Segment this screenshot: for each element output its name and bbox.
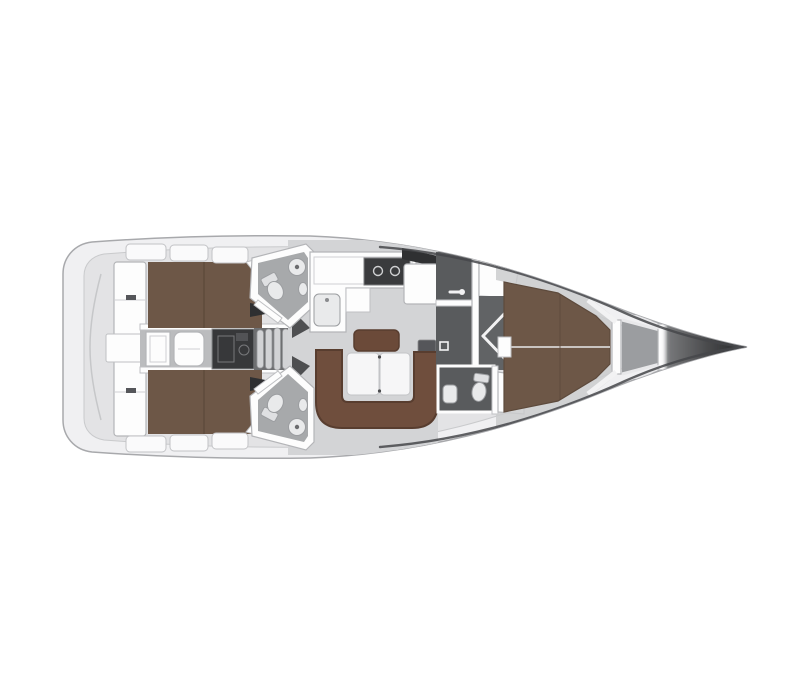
- deck-locker: [212, 433, 248, 449]
- bow-bulkhead: [612, 320, 621, 374]
- table-hinge: [378, 355, 381, 358]
- shower-drain: [295, 265, 299, 269]
- cabinet-knob: [498, 258, 503, 263]
- forward-bench: [354, 330, 399, 351]
- toilet-tank: [473, 373, 489, 383]
- double-berth: [148, 370, 262, 434]
- shower-drain: [295, 425, 299, 429]
- step: [257, 330, 264, 368]
- faucet: [325, 298, 329, 302]
- wc-partition: [492, 366, 498, 414]
- locker-latch: [126, 388, 136, 393]
- sink: [299, 399, 308, 412]
- salon-table-leaf: [380, 353, 410, 395]
- deck-locker: [126, 244, 166, 260]
- step: [274, 328, 281, 370]
- head-partition-wall: [472, 252, 479, 370]
- yacht-floor-plan: [0, 0, 800, 700]
- deck-locker: [170, 435, 208, 451]
- shower-head: [459, 289, 465, 295]
- sink: [299, 283, 308, 296]
- shower-compartment: [436, 252, 474, 370]
- engine-detail: [236, 333, 248, 341]
- berth-step: [498, 337, 511, 357]
- engine-companionway-corridor: [140, 324, 304, 373]
- stove: [364, 258, 410, 285]
- step: [266, 329, 273, 369]
- deck-locker: [212, 247, 248, 263]
- double-berth: [148, 262, 262, 328]
- table-hinge: [378, 389, 381, 392]
- deck-locker: [170, 245, 208, 261]
- bow-tip-shadow: [666, 320, 744, 374]
- salon-table-leaf: [347, 353, 379, 395]
- galley-end-cabinet: [346, 288, 370, 312]
- deck-locker: [126, 436, 166, 452]
- forward-wc: [438, 366, 494, 412]
- shower-wall: [436, 300, 474, 306]
- sink: [443, 385, 457, 403]
- forward-cabin: [496, 266, 612, 428]
- locker-latch: [126, 295, 136, 300]
- nav-desk: [404, 264, 438, 304]
